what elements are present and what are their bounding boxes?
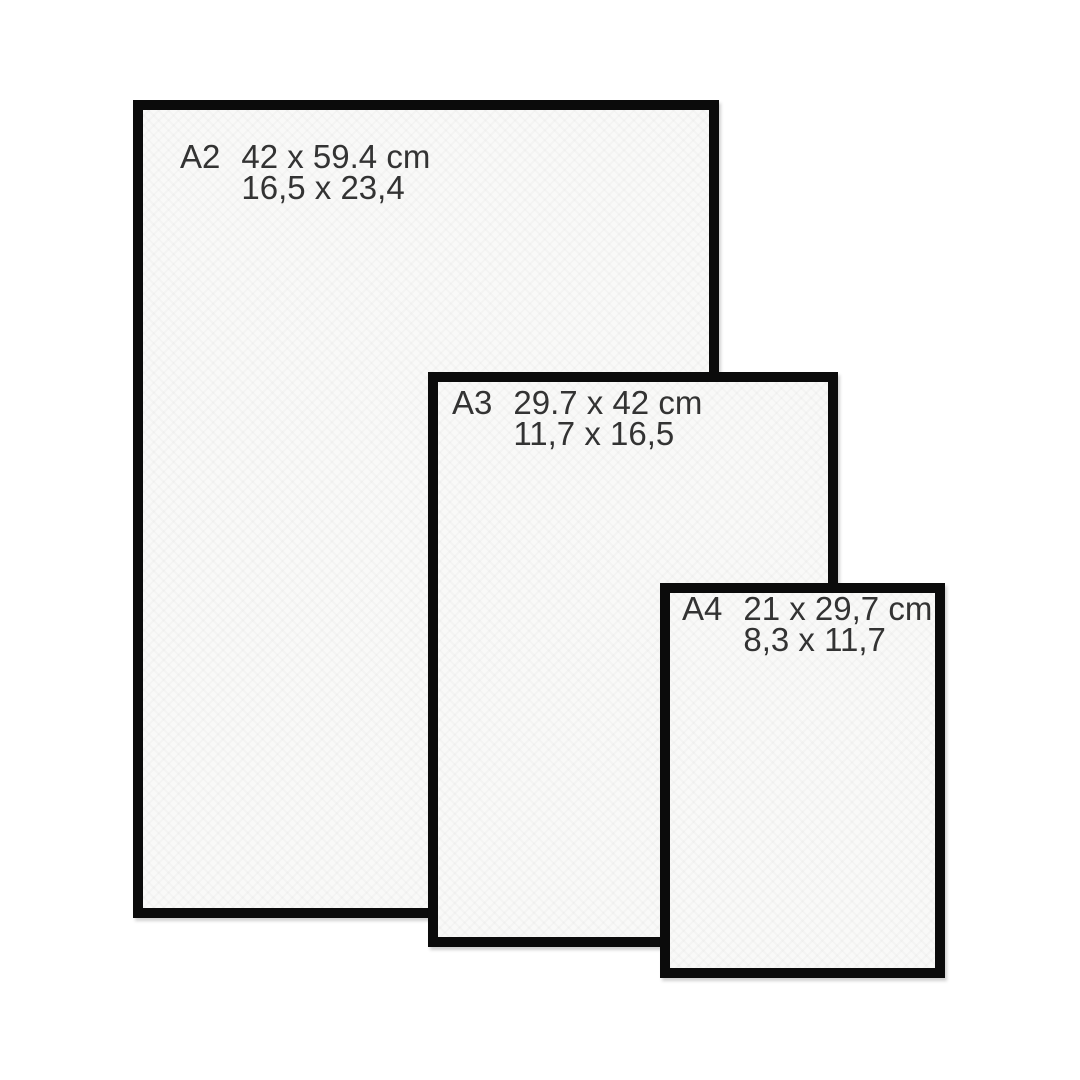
size-cm-a4: 21 x 29,7 cm	[743, 593, 932, 624]
size-dimensions-a2: 42 x 59.4 cm 16,5 x 23,4	[241, 141, 430, 203]
size-label-a2: A2 42 x 59.4 cm 16,5 x 23,4	[180, 141, 430, 203]
frame-a4: A4 21 x 29,7 cm 8,3 x 11,7	[660, 583, 945, 978]
size-code-a3: A3	[452, 387, 492, 449]
size-inches-a3: 11,7 x 16,5	[513, 418, 702, 449]
size-label-a3: A3 29.7 x 42 cm 11,7 x 16,5	[452, 387, 702, 449]
size-inches-a4: 8,3 x 11,7	[743, 624, 932, 655]
size-label-a4: A4 21 x 29,7 cm 8,3 x 11,7	[682, 593, 932, 655]
size-cm-a2: 42 x 59.4 cm	[241, 141, 430, 172]
size-dimensions-a3: 29.7 x 42 cm 11,7 x 16,5	[513, 387, 702, 449]
size-inches-a2: 16,5 x 23,4	[241, 172, 430, 203]
size-code-a2: A2	[180, 141, 220, 203]
paper-size-chart: A2 42 x 59.4 cm 16,5 x 23,4 A3 29.7 x 42…	[0, 0, 1080, 1080]
size-code-a4: A4	[682, 593, 722, 655]
size-dimensions-a4: 21 x 29,7 cm 8,3 x 11,7	[743, 593, 932, 655]
size-cm-a3: 29.7 x 42 cm	[513, 387, 702, 418]
